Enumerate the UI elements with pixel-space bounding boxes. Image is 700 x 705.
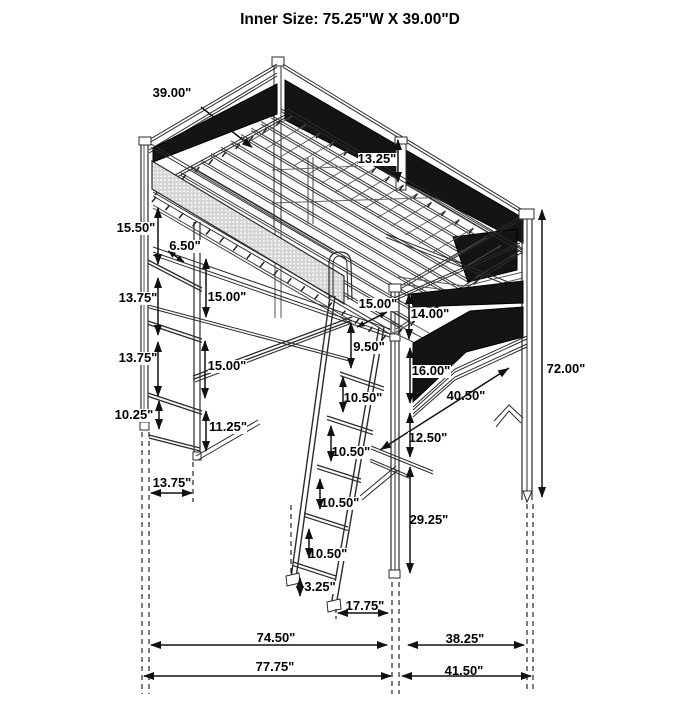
svg-text:13.75": 13.75" bbox=[119, 290, 158, 305]
svg-text:10.50": 10.50" bbox=[344, 390, 383, 405]
svg-text:12.50": 12.50" bbox=[409, 430, 448, 445]
svg-text:10.50": 10.50" bbox=[321, 495, 360, 510]
svg-text:77.75": 77.75" bbox=[256, 659, 295, 674]
svg-text:15.50": 15.50" bbox=[117, 220, 156, 235]
svg-text:38.25": 38.25" bbox=[446, 631, 485, 646]
svg-text:9.50": 9.50" bbox=[353, 339, 384, 354]
svg-text:13.75": 13.75" bbox=[119, 350, 158, 365]
svg-text:29.25": 29.25" bbox=[410, 512, 449, 527]
svg-text:10.50": 10.50" bbox=[309, 546, 348, 561]
svg-text:15.00": 15.00" bbox=[359, 296, 398, 311]
svg-text:39.00": 39.00" bbox=[153, 85, 192, 100]
svg-text:11.25": 11.25" bbox=[209, 419, 247, 434]
svg-text:13.75": 13.75" bbox=[153, 475, 192, 490]
svg-text:6.50": 6.50" bbox=[169, 238, 200, 253]
svg-text:15.00": 15.00" bbox=[208, 289, 247, 304]
svg-text:10.50": 10.50" bbox=[332, 444, 371, 459]
svg-text:72.00": 72.00" bbox=[547, 361, 586, 376]
svg-text:74.50": 74.50" bbox=[257, 630, 296, 645]
svg-text:14.00": 14.00" bbox=[411, 306, 450, 321]
svg-text:10.25": 10.25" bbox=[115, 407, 154, 422]
svg-text:13.25": 13.25" bbox=[358, 151, 397, 166]
svg-text:15.00": 15.00" bbox=[208, 358, 247, 373]
svg-text:16.00": 16.00" bbox=[412, 363, 451, 378]
svg-text:3.25": 3.25" bbox=[304, 579, 335, 594]
svg-text:Inner Size: 75.25"W X 39.00"D: Inner Size: 75.25"W X 39.00"D bbox=[240, 11, 460, 28]
